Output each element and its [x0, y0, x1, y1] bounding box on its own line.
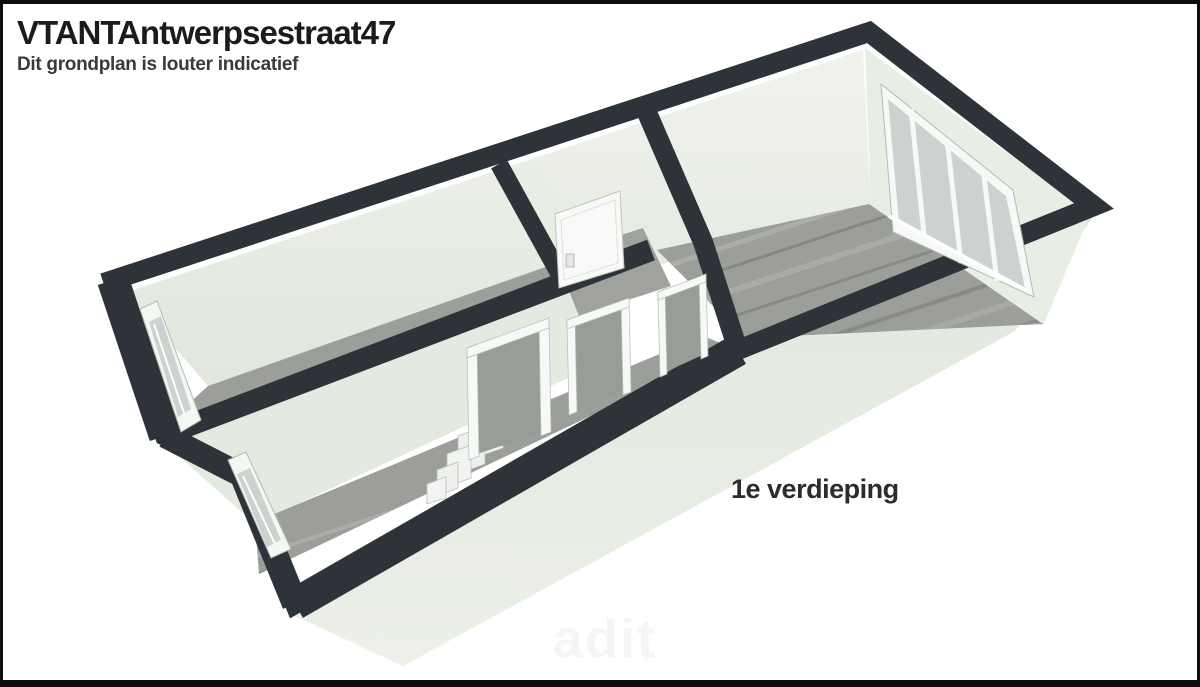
- page-title: VTANTAntwerpsestraat47: [17, 14, 395, 52]
- floor-label: 1e verdieping: [731, 474, 899, 505]
- floorplan-page: VTANTAntwerpsestraat47 Dit grondplan is …: [0, 0, 1200, 687]
- page-subtitle: Dit grondplan is louter indicatief: [17, 54, 395, 76]
- header: VTANTAntwerpsestraat47 Dit grondplan is …: [17, 14, 395, 76]
- floorplan-3d-render: [3, 4, 1200, 687]
- watermark: adit: [553, 608, 657, 670]
- door-handle: [566, 254, 574, 267]
